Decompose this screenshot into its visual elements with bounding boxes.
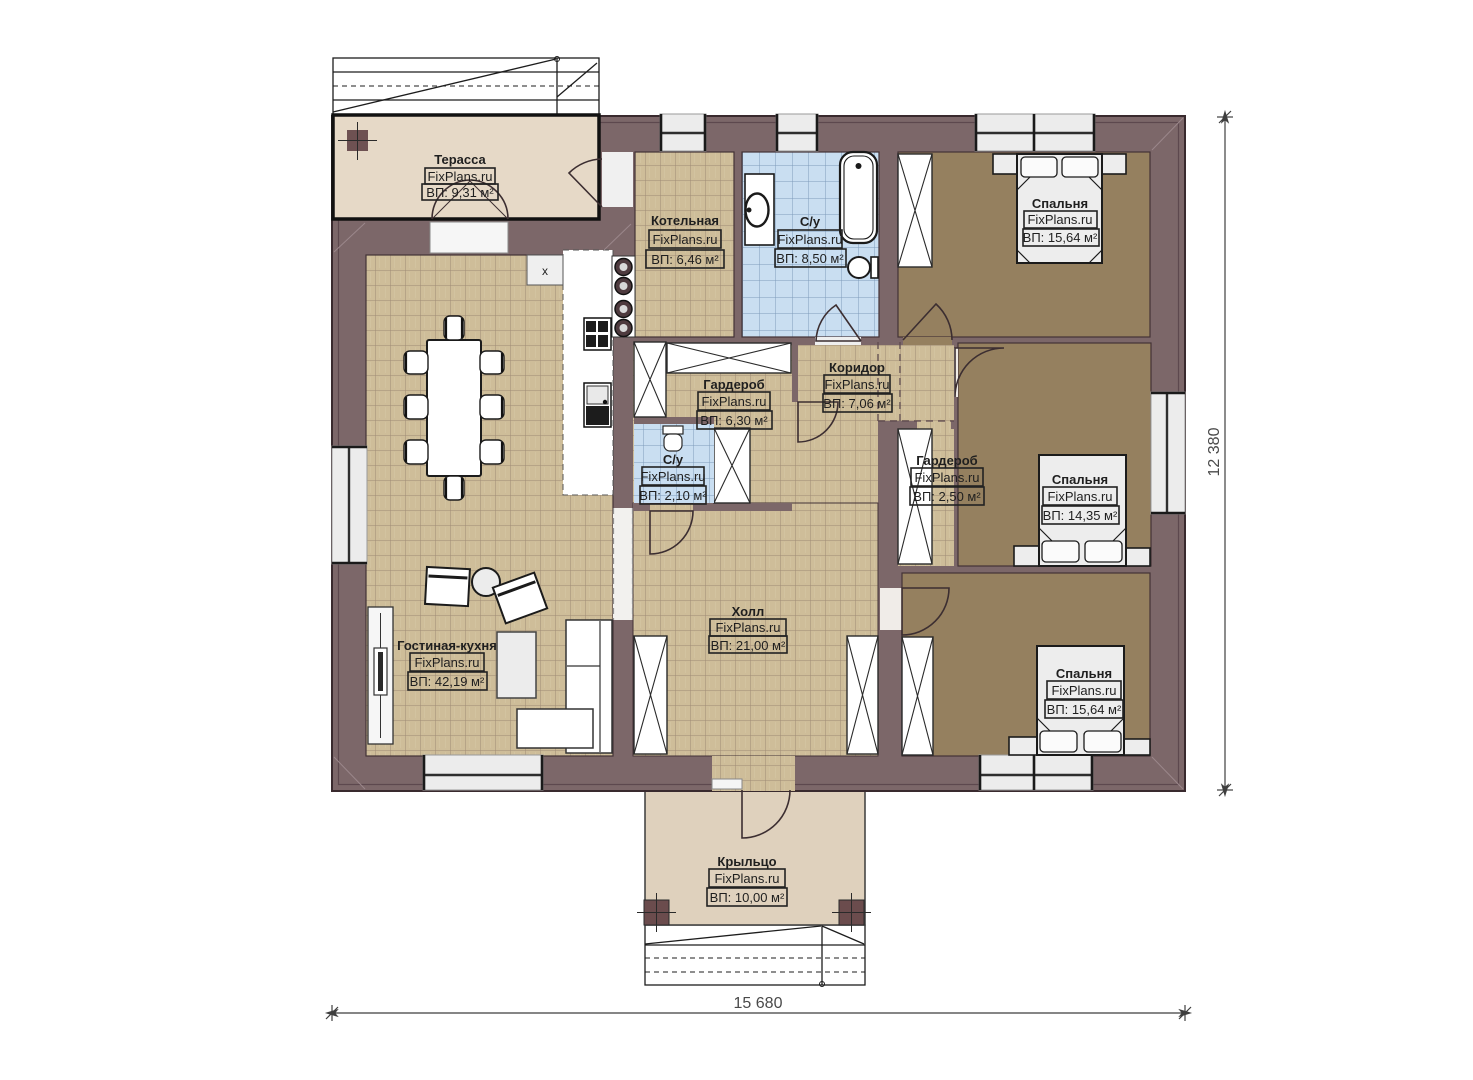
svg-text:FixPlans.ru: FixPlans.ru: [824, 377, 889, 392]
svg-text:FixPlans.ru: FixPlans.ru: [1051, 683, 1116, 698]
svg-text:12 380: 12 380: [1206, 427, 1223, 476]
svg-text:ВП: 6,30 м²: ВП: 6,30 м²: [700, 413, 768, 428]
svg-text:FixPlans.ru: FixPlans.ru: [414, 655, 479, 670]
svg-text:FixPlans.ru: FixPlans.ru: [427, 169, 492, 184]
svg-text:Крыльцо: Крыльцо: [717, 854, 776, 869]
svg-text:ВП: 42,19 м²: ВП: 42,19 м²: [410, 674, 485, 689]
svg-text:С/у: С/у: [800, 214, 821, 229]
svg-text:Гардероб: Гардероб: [916, 453, 977, 468]
svg-text:FixPlans.ru: FixPlans.ru: [640, 469, 705, 484]
svg-text:Спальня: Спальня: [1056, 666, 1112, 681]
svg-text:ВП: 9,31 м²: ВП: 9,31 м²: [426, 185, 494, 200]
svg-text:FixPlans.ru: FixPlans.ru: [714, 871, 779, 886]
svg-text:ВП: 2,50 м²: ВП: 2,50 м²: [913, 489, 981, 504]
svg-text:Терасса: Терасса: [434, 152, 486, 167]
svg-text:Холл: Холл: [732, 604, 765, 619]
svg-text:FixPlans.ru: FixPlans.ru: [914, 470, 979, 485]
svg-text:15 680: 15 680: [734, 995, 783, 1012]
svg-text:FixPlans.ru: FixPlans.ru: [1027, 212, 1092, 227]
svg-text:ВП: 15,64 м²: ВП: 15,64 м²: [1047, 702, 1122, 717]
svg-text:ВП: 21,00 м²: ВП: 21,00 м²: [711, 638, 786, 653]
svg-text:ВП: 8,50 м²: ВП: 8,50 м²: [776, 251, 844, 266]
svg-text:Котельная: Котельная: [651, 213, 719, 228]
svg-text:FixPlans.ru: FixPlans.ru: [715, 620, 780, 635]
svg-text:ВП: 15,64 м²: ВП: 15,64 м²: [1023, 230, 1098, 245]
svg-text:Гардероб: Гардероб: [703, 377, 764, 392]
svg-text:Коридор: Коридор: [829, 360, 885, 375]
svg-text:ВП: 2,10 м²: ВП: 2,10 м²: [639, 488, 707, 503]
svg-text:FixPlans.ru: FixPlans.ru: [652, 232, 717, 247]
svg-text:Спальня: Спальня: [1052, 472, 1108, 487]
svg-text:ВП: 7,06 м²: ВП: 7,06 м²: [823, 396, 891, 411]
svg-text:ВП: 14,35 м²: ВП: 14,35 м²: [1043, 508, 1118, 523]
svg-text:FixPlans.ru: FixPlans.ru: [777, 232, 842, 247]
svg-text:x: x: [542, 264, 548, 278]
svg-text:FixPlans.ru: FixPlans.ru: [701, 394, 766, 409]
svg-text:ВП: 10,00 м²: ВП: 10,00 м²: [710, 890, 785, 905]
svg-text:ВП: 6,46 м²: ВП: 6,46 м²: [651, 252, 719, 267]
svg-text:Спальня: Спальня: [1032, 196, 1088, 211]
svg-text:FixPlans.ru: FixPlans.ru: [1047, 489, 1112, 504]
svg-text:С/у: С/у: [663, 452, 684, 467]
svg-text:Гостиная-кухня: Гостиная-кухня: [397, 638, 497, 653]
